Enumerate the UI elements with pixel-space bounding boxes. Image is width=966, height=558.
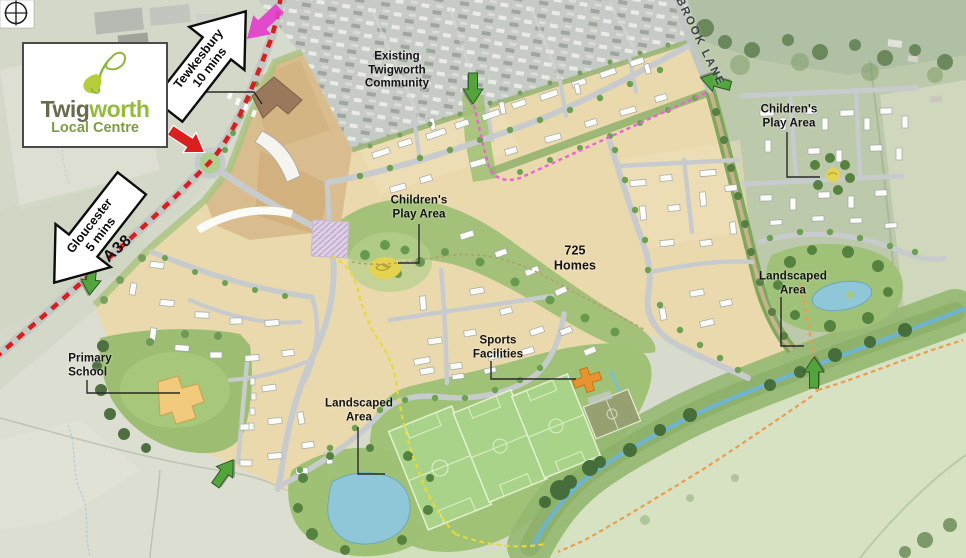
logo-title-part1: Twig [41, 96, 90, 122]
logo-title: Twigworth [41, 98, 150, 121]
label-primary-school: Primary School [68, 352, 112, 379]
label-landscaped-south: Landscaped Area [325, 397, 393, 424]
site-logo: Twigworth Local Centre [22, 42, 168, 148]
logo-subtitle: Local Centre [51, 121, 139, 137]
label-play-area-central: Children's Play Area [391, 194, 448, 221]
logo-title-part2: worth [89, 96, 149, 122]
north-indicator-icon [0, 0, 34, 28]
label-play-area-east: Children's Play Area [761, 103, 818, 130]
masterplan-map: Existing Twigworth Community Children's … [0, 0, 966, 558]
label-725-homes: 725 Homes [554, 243, 596, 273]
label-sports-facilities: Sports Facilities [473, 334, 523, 361]
twigworth-leaf-icon [63, 48, 127, 100]
label-existing-community: Existing Twigworth Community [365, 51, 429, 92]
village-square [311, 220, 349, 258]
label-landscaped-east: Landscaped Area [759, 270, 827, 297]
